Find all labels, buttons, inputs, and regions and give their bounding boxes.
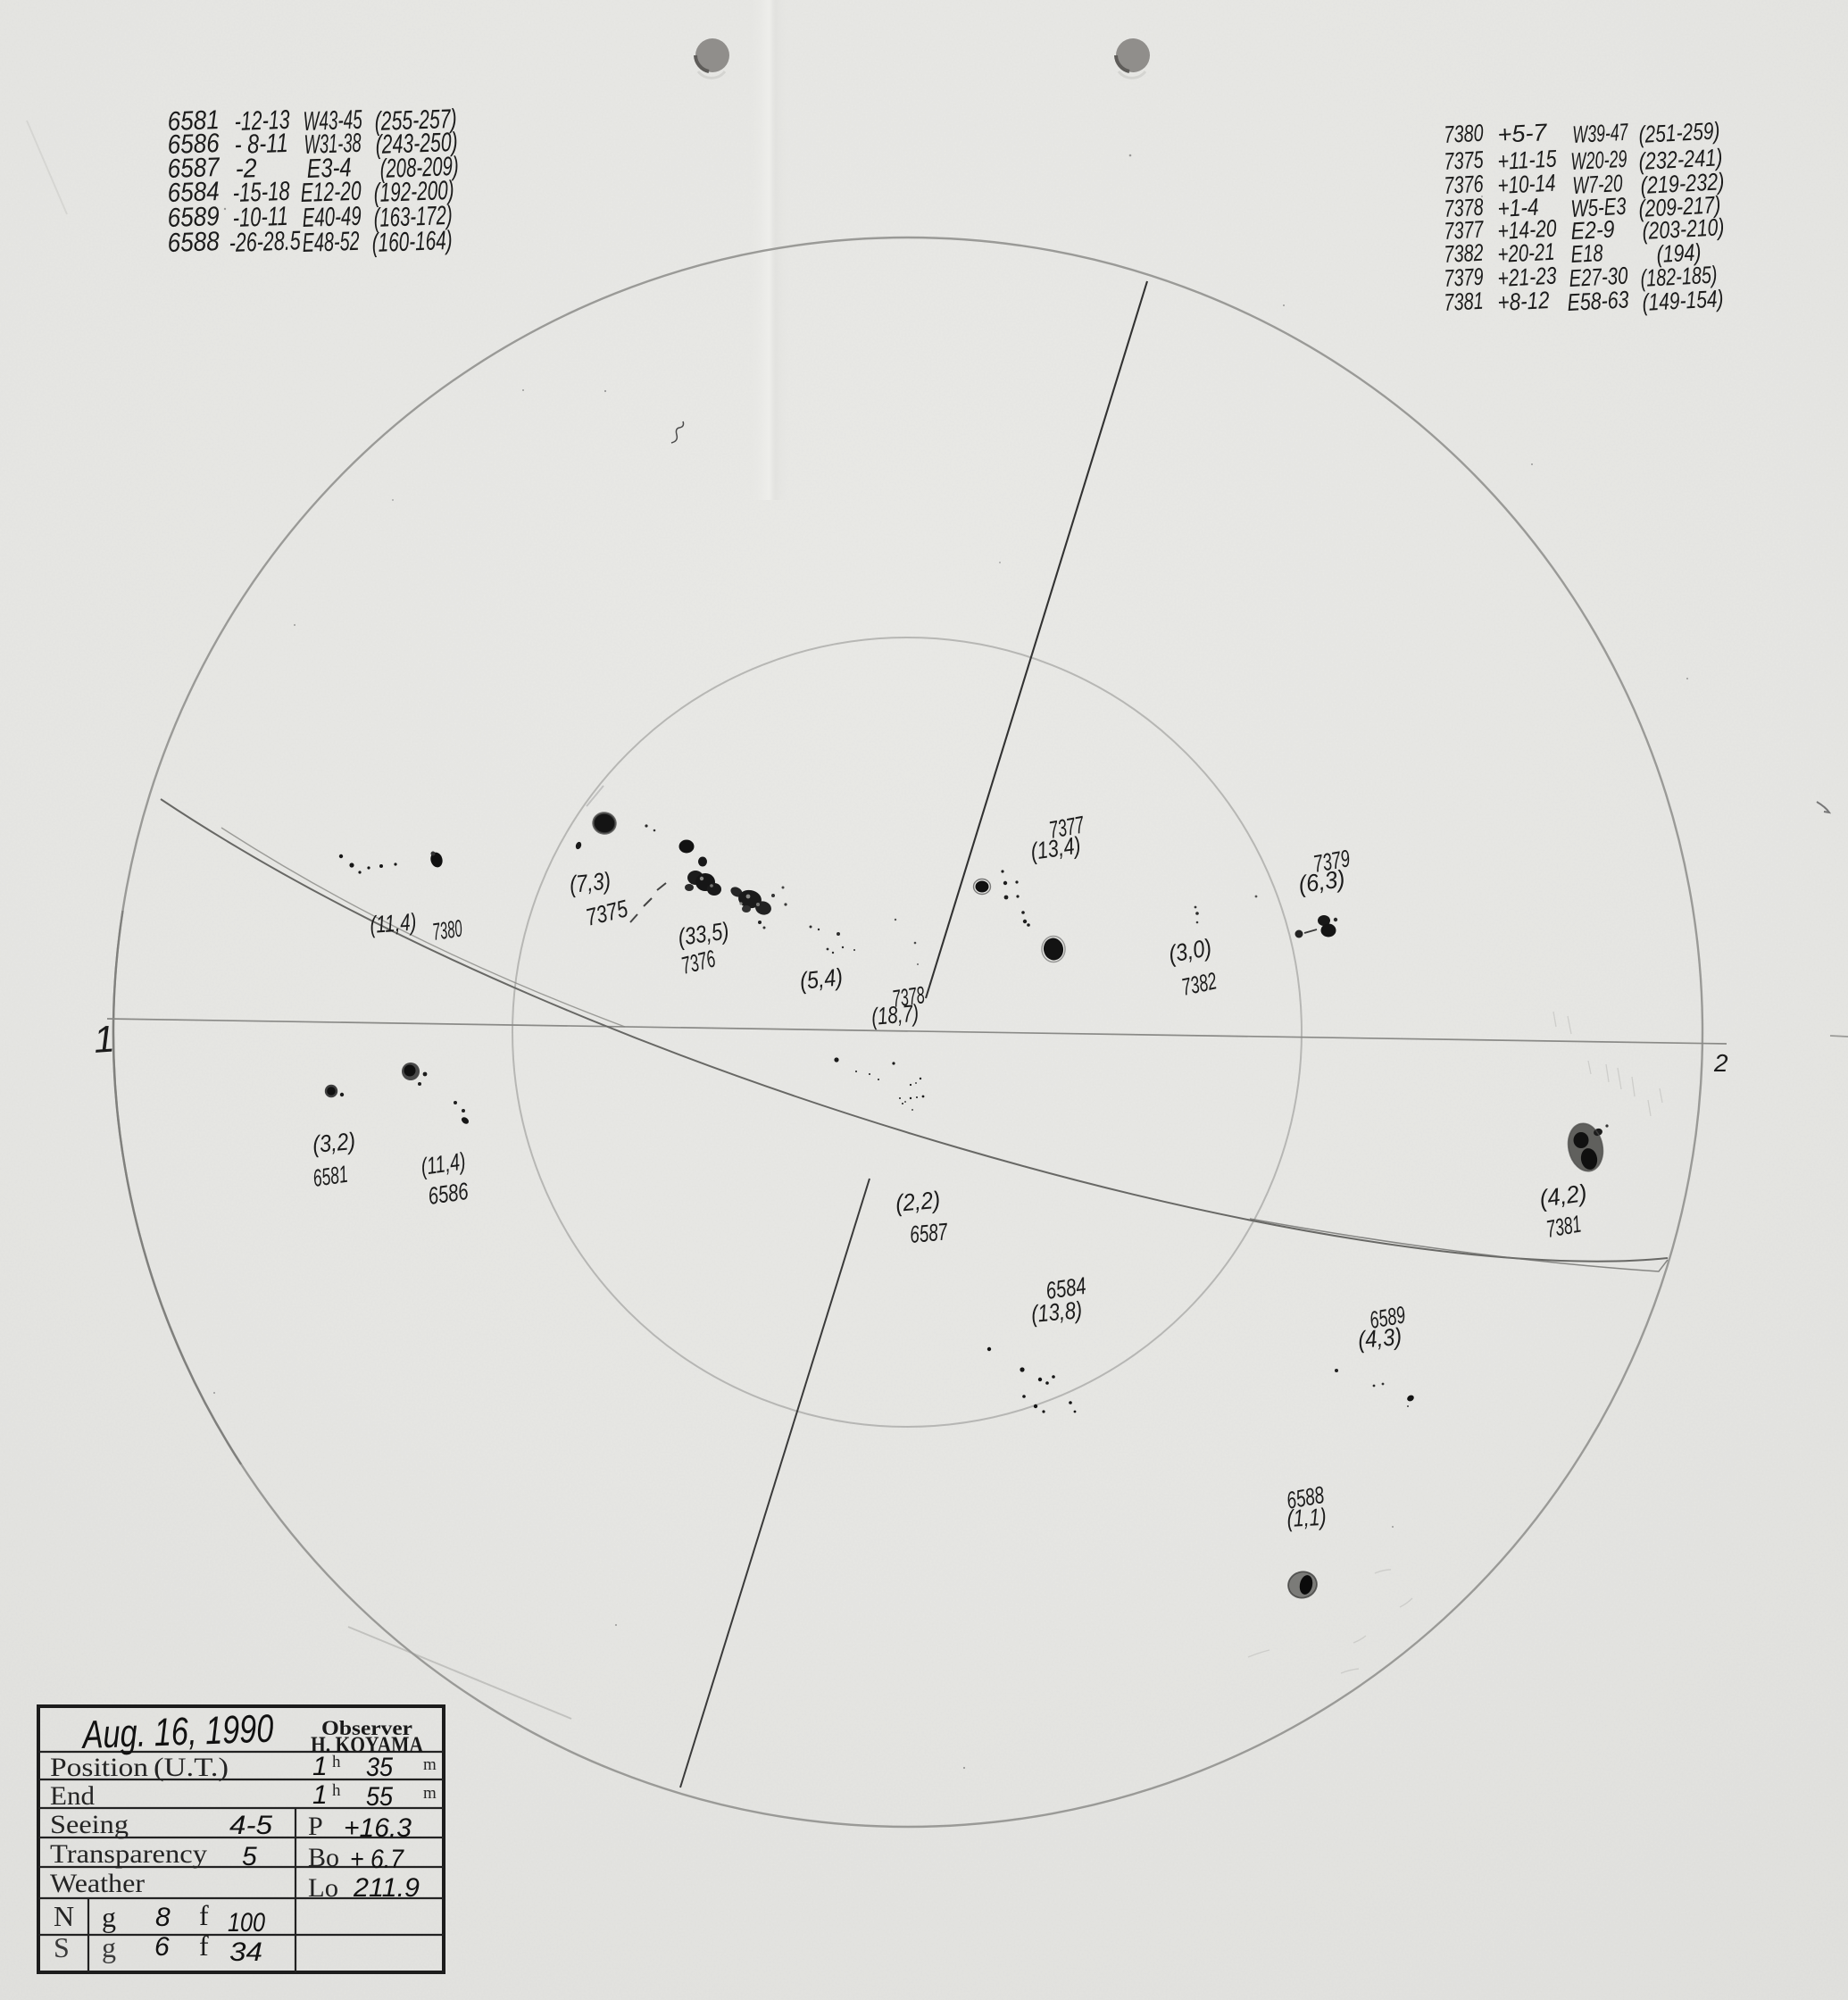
svg-text:(251-259): (251-259) bbox=[1638, 117, 1720, 148]
svg-text:1: 1 bbox=[312, 1780, 328, 1810]
svg-text:End: End bbox=[50, 1781, 95, 1811]
svg-text:Seeing: Seeing bbox=[50, 1810, 129, 1839]
svg-text:Weather: Weather bbox=[50, 1869, 145, 1898]
svg-text:(18,7): (18,7) bbox=[870, 999, 920, 1030]
svg-text:8: 8 bbox=[155, 1903, 171, 1932]
svg-text:211.9: 211.9 bbox=[353, 1873, 420, 1903]
svg-text:W39-47: W39-47 bbox=[1572, 119, 1629, 148]
svg-text:100: 100 bbox=[228, 1908, 265, 1937]
svg-text:h: h bbox=[332, 1753, 341, 1771]
svg-text:(U.T.): (U.T.) bbox=[154, 1753, 229, 1782]
svg-text:Bo: Bo bbox=[308, 1843, 339, 1872]
svg-text:S: S bbox=[54, 1931, 70, 1963]
svg-text:f: f bbox=[199, 1929, 209, 1962]
svg-text:g: g bbox=[102, 1931, 116, 1963]
svg-text:N: N bbox=[54, 1900, 74, 1932]
svg-text:35: 35 bbox=[366, 1753, 393, 1782]
svg-text:Position: Position bbox=[50, 1753, 148, 1782]
svg-text:Aug. 16, 1990: Aug. 16, 1990 bbox=[79, 1707, 274, 1758]
svg-text:+5-7: +5-7 bbox=[1497, 119, 1548, 148]
svg-text:m: m bbox=[423, 1755, 437, 1774]
svg-text:34: 34 bbox=[229, 1937, 262, 1967]
svg-text:6581: 6581 bbox=[312, 1161, 350, 1192]
svg-text:E48-52: E48-52 bbox=[302, 227, 360, 258]
svg-text:(4,3): (4,3) bbox=[1357, 1323, 1403, 1354]
svg-text:(3,2): (3,2) bbox=[312, 1128, 356, 1158]
svg-text:+8-12: +8-12 bbox=[1497, 287, 1550, 316]
svg-text:6588: 6588 bbox=[167, 227, 220, 258]
svg-text:4-5: 4-5 bbox=[229, 1811, 272, 1840]
svg-text:55: 55 bbox=[366, 1782, 393, 1812]
svg-text:(13,8): (13,8) bbox=[1030, 1296, 1083, 1328]
svg-text:1: 1 bbox=[92, 1017, 116, 1061]
svg-text:5: 5 bbox=[242, 1842, 257, 1871]
svg-text:f: f bbox=[199, 1899, 209, 1931]
svg-text:7380: 7380 bbox=[1444, 120, 1485, 148]
svg-text:6586: 6586 bbox=[427, 1178, 470, 1210]
svg-text:2: 2 bbox=[1713, 1049, 1728, 1077]
svg-text:1: 1 bbox=[312, 1752, 328, 1781]
svg-text:(5,4): (5,4) bbox=[798, 963, 844, 995]
svg-text:Transparency: Transparency bbox=[50, 1839, 207, 1869]
svg-text:P: P bbox=[308, 1812, 323, 1841]
svg-text:(2,2): (2,2) bbox=[895, 1187, 941, 1217]
svg-text:(149-154): (149-154) bbox=[1642, 285, 1724, 316]
svg-text:-26-28.5: -26-28.5 bbox=[229, 226, 301, 258]
svg-text:6: 6 bbox=[154, 1932, 170, 1962]
svg-text:+ 6.7: + 6.7 bbox=[350, 1845, 404, 1874]
svg-text:(160-164): (160-164) bbox=[371, 226, 453, 258]
svg-text:(1,1): (1,1) bbox=[1286, 1504, 1328, 1532]
svg-text:h: h bbox=[332, 1781, 341, 1800]
svg-text:7380: 7380 bbox=[431, 915, 464, 946]
svg-text:(11,4): (11,4) bbox=[369, 908, 417, 938]
svg-text:6587: 6587 bbox=[909, 1218, 949, 1248]
svg-text:E58-63: E58-63 bbox=[1567, 286, 1629, 316]
svg-text:(7,3): (7,3) bbox=[568, 867, 612, 898]
svg-text:g: g bbox=[102, 1901, 116, 1933]
svg-text:Lo: Lo bbox=[308, 1873, 338, 1903]
svg-text:+16.3: +16.3 bbox=[344, 1813, 412, 1843]
svg-text:m: m bbox=[423, 1784, 437, 1803]
svg-text:7381: 7381 bbox=[1444, 287, 1485, 316]
